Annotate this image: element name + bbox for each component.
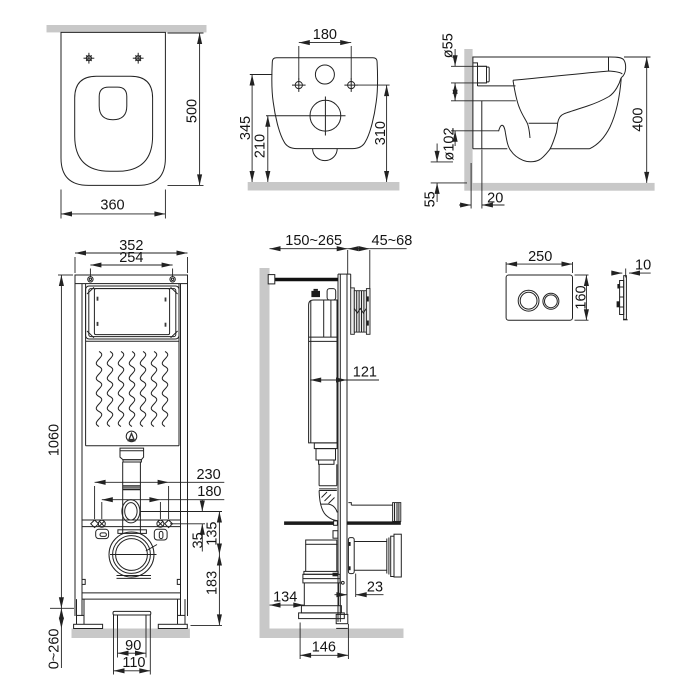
svg-text:134: 134 (273, 590, 297, 606)
svg-text:20: 20 (487, 191, 503, 207)
svg-text:55: 55 (422, 191, 438, 207)
svg-text:254: 254 (119, 250, 143, 266)
svg-text:23: 23 (367, 579, 383, 595)
svg-text:135: 135 (204, 521, 220, 545)
svg-text:1060: 1060 (47, 424, 63, 456)
svg-text:400: 400 (630, 107, 646, 131)
svg-text:210: 210 (252, 134, 268, 158)
svg-text:360: 360 (100, 198, 124, 214)
svg-text:ø102: ø102 (442, 127, 458, 160)
svg-text:150~265: 150~265 (285, 233, 342, 249)
svg-text:183: 183 (204, 571, 220, 595)
svg-text:121: 121 (353, 364, 377, 380)
svg-text:160: 160 (573, 285, 589, 309)
svg-text:0~260: 0~260 (47, 629, 63, 670)
svg-text:500: 500 (184, 99, 200, 123)
svg-text:180: 180 (197, 484, 221, 500)
svg-text:250: 250 (528, 249, 552, 265)
svg-text:180: 180 (313, 27, 337, 43)
svg-text:310: 310 (373, 121, 389, 145)
svg-text:230: 230 (196, 467, 220, 483)
svg-text:110: 110 (122, 655, 145, 671)
svg-text:146: 146 (312, 640, 336, 656)
svg-text:ø55: ø55 (440, 33, 456, 58)
svg-text:90: 90 (125, 638, 141, 654)
svg-text:10: 10 (635, 257, 651, 273)
svg-text:45~68: 45~68 (372, 233, 413, 249)
